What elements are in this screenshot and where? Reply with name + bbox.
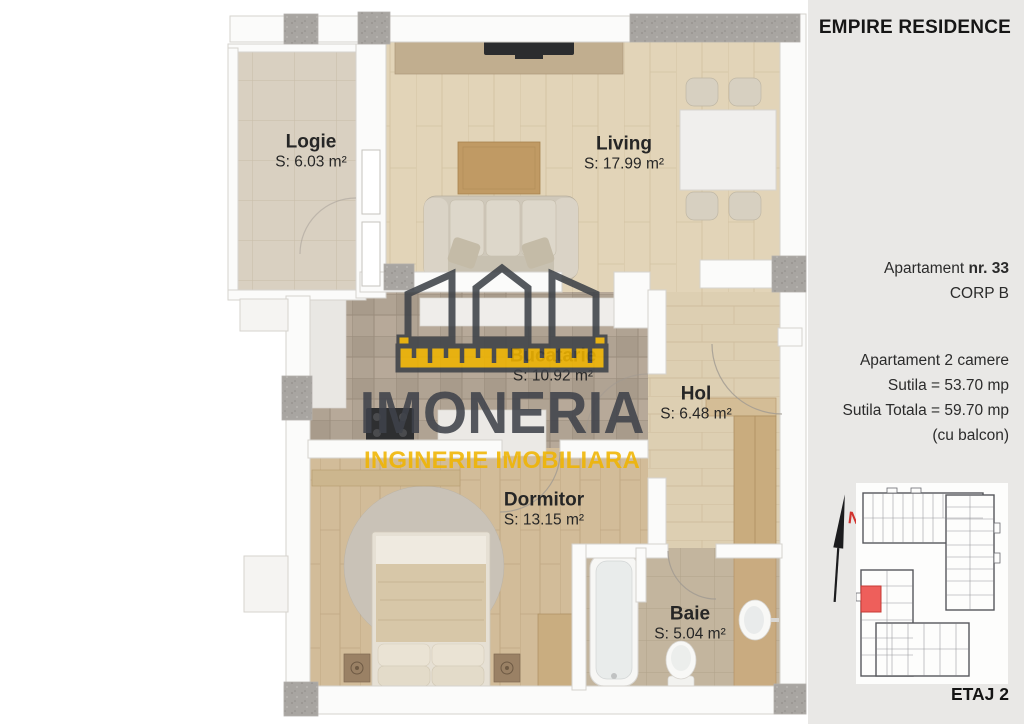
floor-logie (232, 52, 363, 298)
room-label-hol: Hol S: 6.48 m² (660, 384, 732, 425)
tv-console (395, 38, 623, 74)
apartment-type: Apartament 2 camere (843, 348, 1009, 373)
apartment-area-total: Sutila Totala = 59.70 mp (843, 398, 1009, 423)
nightstand (344, 654, 370, 682)
stove (366, 408, 414, 442)
page: Logie S: 6.03 m² Living S: 17.99 m² Buca… (0, 0, 1024, 724)
floor-minimap (856, 483, 1008, 684)
room-label-logie: Logie S: 6.03 m² (275, 132, 347, 173)
info-sidebar: EMPIRE RESIDENCE Apartament nr. 33 CORP … (808, 0, 1024, 724)
coffee-table (458, 142, 540, 194)
apartment-corp: CORP B (884, 281, 1009, 306)
shelf (312, 470, 460, 486)
radiator (244, 556, 288, 612)
bathtub (590, 554, 638, 686)
project-title: EMPIRE RESIDENCE (819, 17, 1011, 39)
tv (484, 41, 574, 55)
apartment-area-usable: Sutila = 53.70 mp (843, 373, 1009, 398)
room-label-baie: Baie S: 5.04 m² (654, 604, 726, 645)
room-label-bucatarie: Bucatarie S: 10.92 m² (510, 346, 597, 387)
apartment-number-line: Apartament nr. 33 (884, 256, 1009, 281)
room-label-living: Living S: 17.99 m² (584, 134, 664, 175)
floorplan-area: Logie S: 6.03 m² Living S: 17.99 m² Buca… (0, 0, 810, 724)
dining-table (680, 110, 776, 190)
sofa (424, 196, 578, 280)
apartment-areas-block: Apartament 2 camere Sutila = 53.70 mp Su… (843, 348, 1009, 448)
highlighted-unit (861, 586, 881, 612)
radiator (240, 299, 288, 331)
room-label-dormitor: Dormitor S: 13.15 m² (504, 490, 584, 531)
nightstand (494, 654, 520, 682)
floor-label: ETAJ 2 (951, 684, 1009, 705)
apartment-area-note: (cu balcon) (843, 423, 1009, 448)
bed (372, 532, 490, 690)
window (362, 150, 380, 214)
kitchen-counter (420, 298, 616, 326)
building-outline (861, 493, 994, 676)
toilet (666, 641, 696, 688)
window (362, 222, 380, 286)
apartment-id-block: Apartament nr. 33 CORP B (884, 256, 1009, 306)
